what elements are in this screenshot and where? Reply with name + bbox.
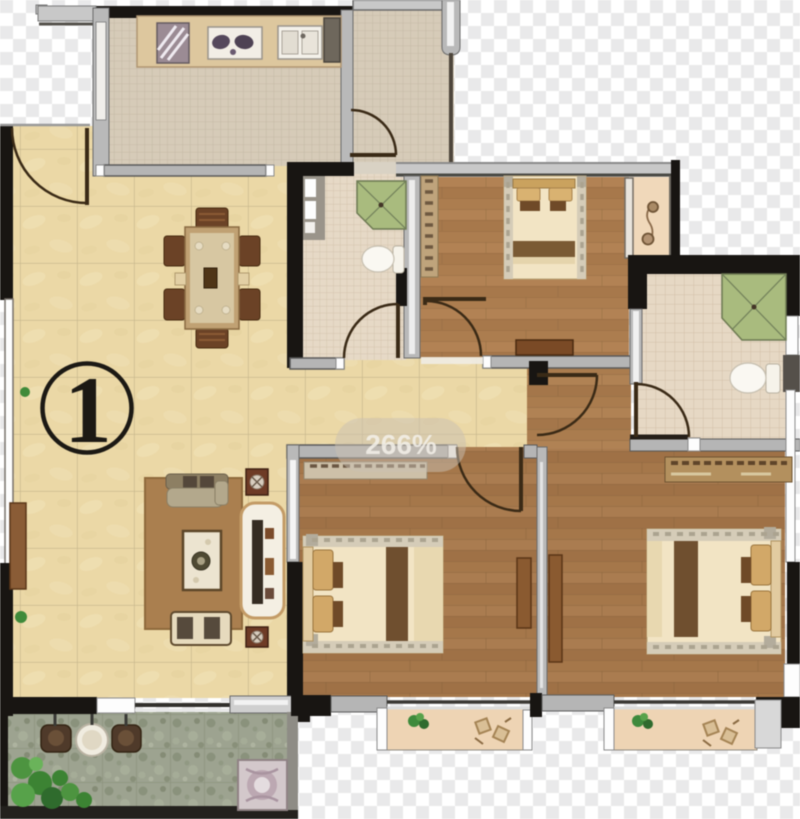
- svg-text:1: 1: [64, 357, 112, 463]
- svg-text:266%: 266%: [365, 429, 437, 460]
